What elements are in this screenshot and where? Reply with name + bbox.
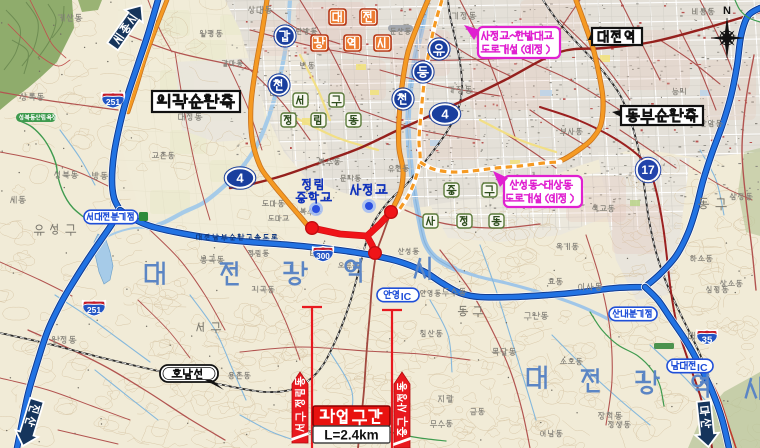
- svg-text:4: 4: [441, 107, 449, 122]
- svg-text:251: 251: [87, 305, 101, 315]
- svg-text:N: N: [723, 5, 731, 17]
- svg-text:17: 17: [641, 163, 655, 177]
- svg-text:4: 4: [236, 171, 244, 186]
- svg-text:300: 300: [316, 252, 330, 261]
- svg-text:35: 35: [702, 335, 713, 346]
- svg-text:L=2.4km: L=2.4km: [324, 428, 378, 443]
- svg-text:IC: IC: [401, 291, 412, 303]
- svg-text:251: 251: [106, 97, 120, 107]
- svg-text:IC: IC: [697, 362, 708, 374]
